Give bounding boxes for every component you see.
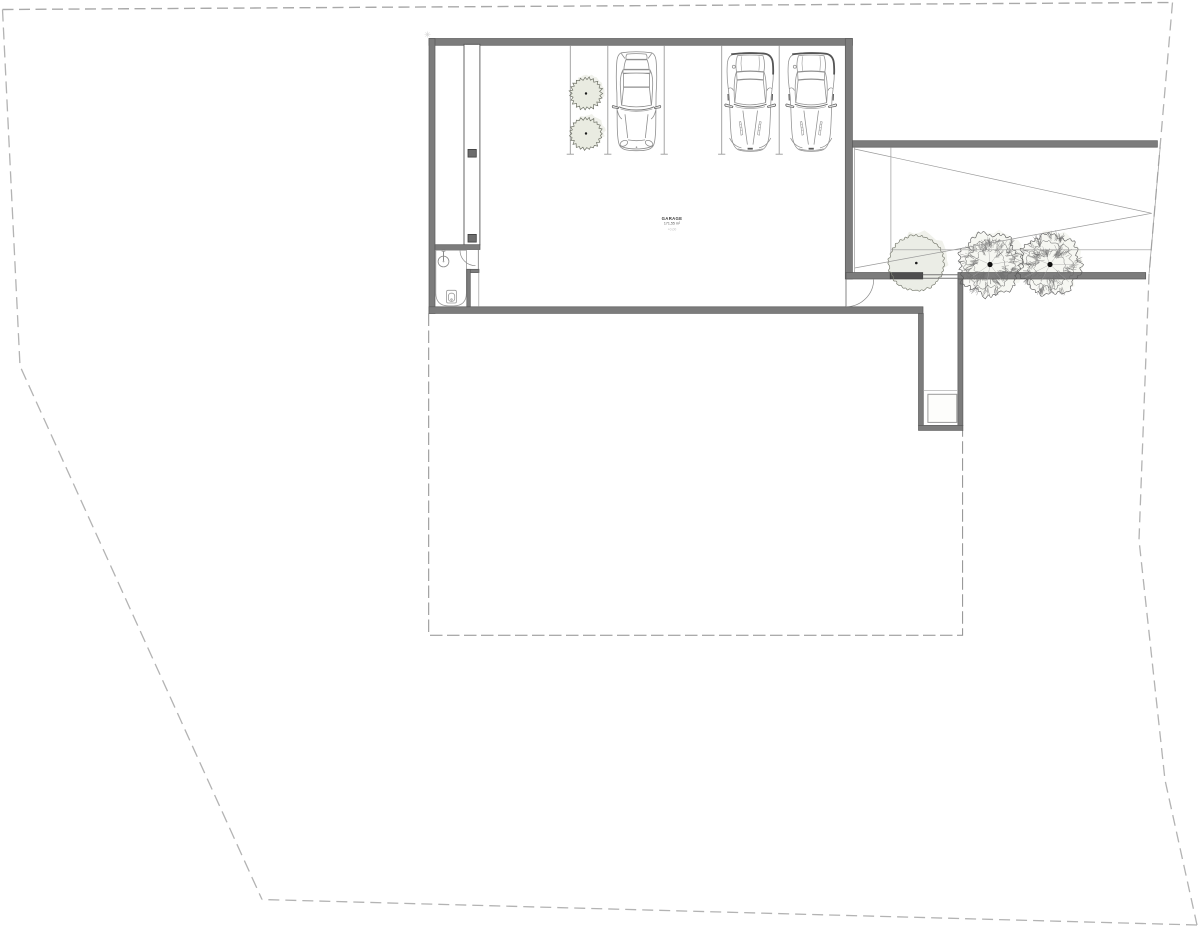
svg-text:GARAGE: GARAGE: [662, 216, 683, 221]
svg-text:+0,00: +0,00: [668, 227, 677, 231]
svg-text:171,55 m²: 171,55 m²: [664, 222, 681, 226]
